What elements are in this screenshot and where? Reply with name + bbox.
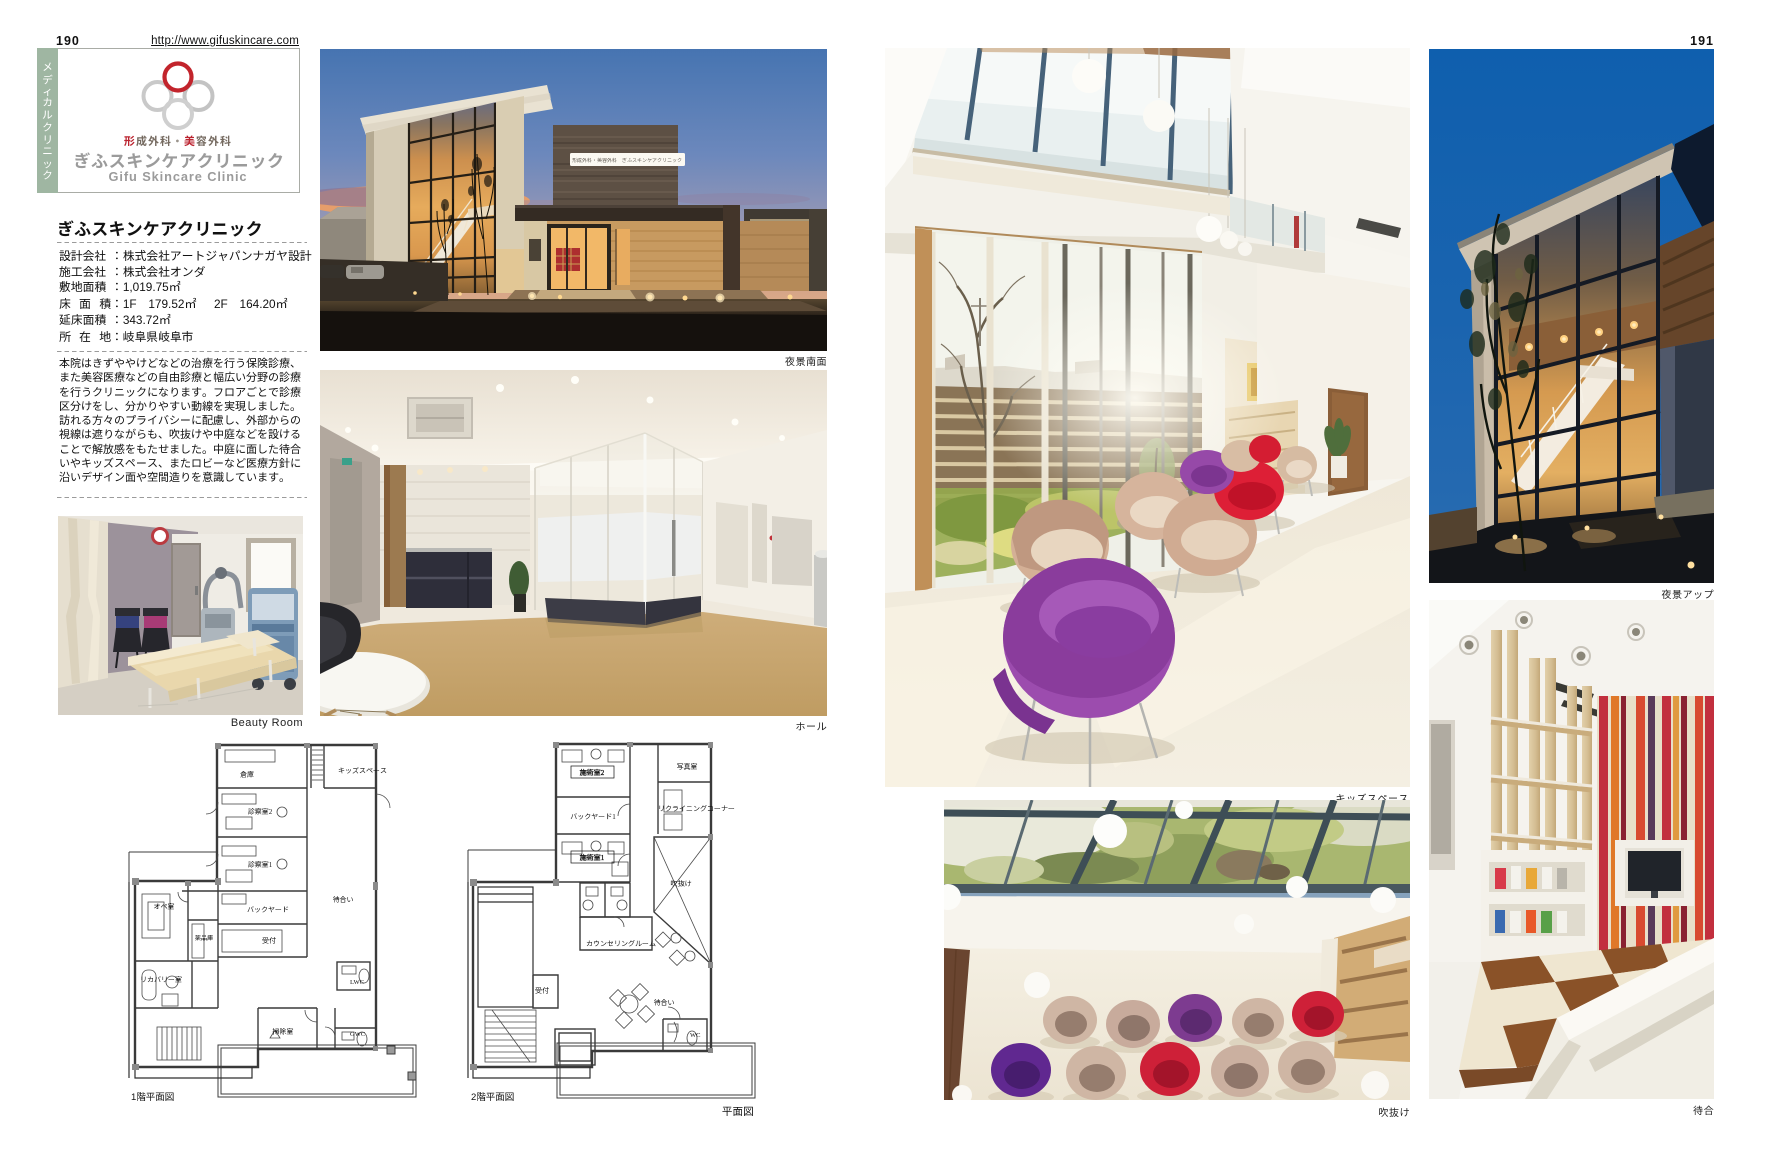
svg-text:待合い: 待合い <box>333 895 354 905</box>
svg-text:施術室2: 施術室2 <box>580 768 605 778</box>
svg-text:倉庫: 倉庫 <box>240 770 254 780</box>
svg-text:オペ室: オペ室 <box>154 902 175 912</box>
svg-text:GWC: GWC <box>350 1028 365 1038</box>
svg-text:受付: 受付 <box>535 986 549 996</box>
svg-text:掃除室: 掃除室 <box>273 1027 294 1037</box>
svg-text:形成外科・美容外科 ぎふスキンケアクリニック: 形成外科・美容外科 ぎふスキンケアクリニック <box>572 157 682 164</box>
svg-text:リクライニングコーナー: リクライニングコーナー <box>658 804 735 814</box>
svg-text:薬品庫: 薬品庫 <box>194 933 214 942</box>
svg-text:吹抜け: 吹抜け <box>671 879 692 889</box>
svg-text:バックヤード: バックヤード <box>247 905 289 915</box>
svg-text:WC: WC <box>690 1029 700 1039</box>
svg-text:診察室2: 診察室2 <box>248 807 273 817</box>
svg-text:リカバリー室: リカバリー室 <box>140 975 182 985</box>
svg-text:受付: 受付 <box>262 936 276 946</box>
svg-text:LWC: LWC <box>350 976 364 986</box>
svg-text:バックヤード1: バックヤード1 <box>570 812 616 822</box>
svg-text:写真室: 写真室 <box>677 762 698 772</box>
svg-text:待合い: 待合い <box>654 998 675 1008</box>
svg-text:カウンセリングルーム: カウンセリングルーム <box>586 939 656 949</box>
svg-text:キッズスペース: キッズスペース <box>338 766 387 776</box>
svg-text:診察室1: 診察室1 <box>248 860 273 870</box>
svg-text:施術室1: 施術室1 <box>580 853 605 863</box>
